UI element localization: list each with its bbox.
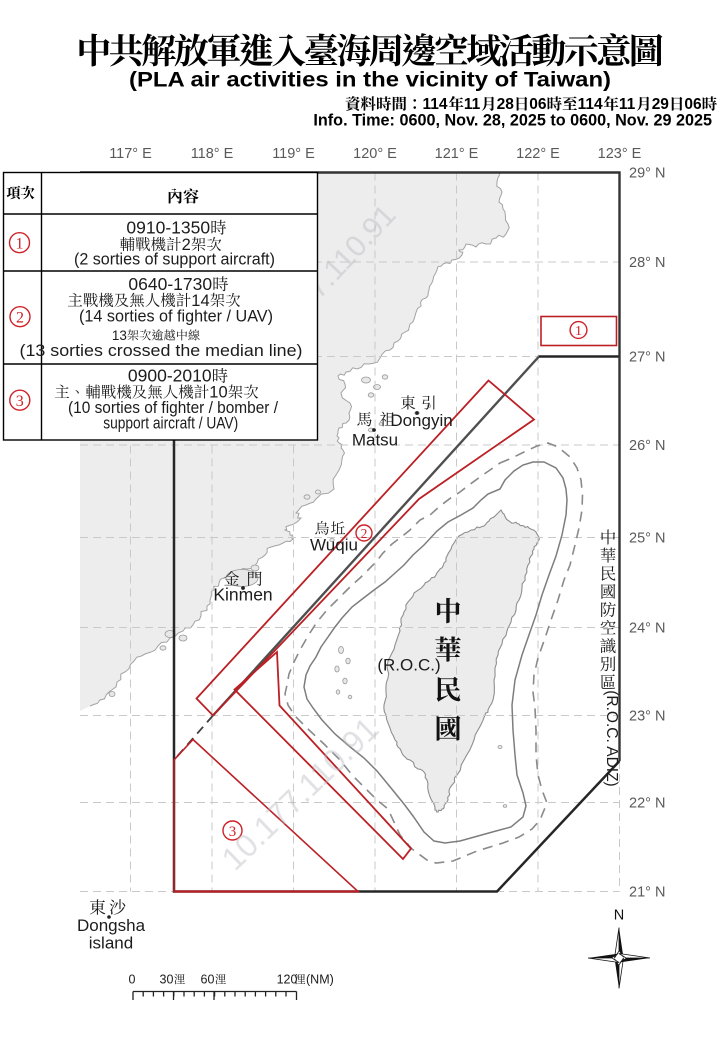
svg-text:(14 sorties of fighter / UAV): (14 sorties of fighter / UAV)	[79, 308, 273, 326]
svg-text:0: 0	[129, 973, 136, 987]
svg-text:27° N: 27° N	[629, 350, 665, 366]
svg-text:11: 11	[464, 96, 481, 113]
svg-text:28: 28	[497, 96, 515, 113]
svg-text:119° E: 119° E	[272, 146, 315, 162]
svg-text:121° E: 121° E	[435, 146, 479, 162]
svg-text:Dongyin: Dongyin	[390, 411, 452, 430]
svg-text:06: 06	[684, 96, 702, 113]
svg-text:25° N: 25° N	[629, 531, 665, 547]
svg-text:60: 60	[201, 973, 215, 987]
svg-text:(2 sorties of support aircraft: (2 sorties of support aircraft)	[74, 250, 275, 268]
svg-text:Wuqiu: Wuqiu	[310, 536, 358, 555]
svg-text:123° E: 123° E	[598, 146, 642, 162]
svg-text:island: island	[89, 934, 133, 953]
svg-text:117° E: 117° E	[109, 146, 152, 162]
svg-text:Info. Time: 0600, Nov. 28, 202: Info. Time: 0600, Nov. 28, 2025 to 0600,…	[313, 112, 712, 130]
svg-text:2: 2	[16, 309, 24, 326]
svg-text:3: 3	[16, 393, 24, 410]
svg-text:N: N	[614, 908, 624, 924]
svg-text:06: 06	[529, 96, 547, 113]
svg-text:0910-1350: 0910-1350	[126, 217, 210, 237]
svg-text:122° E: 122° E	[516, 146, 560, 162]
svg-text:118° E: 118° E	[191, 146, 234, 162]
svg-text:support aircraft / UAV): support aircraft / UAV)	[103, 414, 238, 432]
svg-text:Matsu: Matsu	[352, 431, 398, 450]
svg-text:Dongsha: Dongsha	[77, 916, 146, 935]
svg-text:13: 13	[112, 328, 127, 343]
svg-text:23° N: 23° N	[629, 709, 665, 725]
svg-text:28° N: 28° N	[629, 255, 665, 271]
svg-text:Kinmen: Kinmen	[213, 585, 272, 605]
svg-text:114: 114	[578, 96, 603, 113]
svg-text:2: 2	[361, 526, 368, 541]
svg-text:22° N: 22° N	[629, 796, 665, 812]
svg-text:11: 11	[619, 96, 636, 113]
svg-text:1: 1	[575, 324, 582, 339]
svg-text:29: 29	[652, 96, 670, 113]
svg-text:(R.O.C. ADIZ): (R.O.C. ADIZ)	[603, 690, 620, 786]
svg-text:21° N: 21° N	[629, 885, 665, 901]
svg-text:(PLA air activities in the vic: (PLA air activities in the vicinity of T…	[129, 69, 611, 92]
svg-text:120° E: 120° E	[353, 146, 397, 162]
svg-text:24° N: 24° N	[629, 621, 665, 637]
svg-text:(R.O.C.): (R.O.C.)	[377, 656, 440, 675]
svg-text:26° N: 26° N	[629, 438, 665, 454]
svg-text:1: 1	[16, 235, 24, 252]
svg-text:120: 120	[277, 973, 298, 987]
svg-text:0900-2010: 0900-2010	[128, 366, 212, 386]
svg-text:29° N: 29° N	[629, 166, 665, 182]
svg-text:(NM): (NM)	[306, 973, 334, 987]
svg-text:114: 114	[423, 96, 448, 113]
svg-text:(13 sorties crossed the median: (13 sorties crossed the median line)	[20, 342, 303, 360]
svg-text:30: 30	[160, 973, 174, 987]
